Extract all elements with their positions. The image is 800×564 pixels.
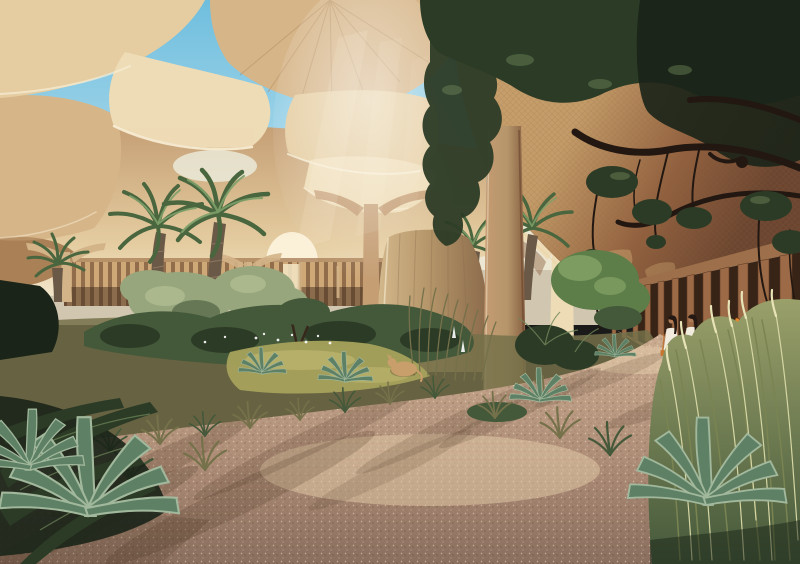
small-tree-canopy [278,298,330,326]
oasis-rendering-canvas [0,0,800,564]
oasis-rendering [0,0,800,564]
